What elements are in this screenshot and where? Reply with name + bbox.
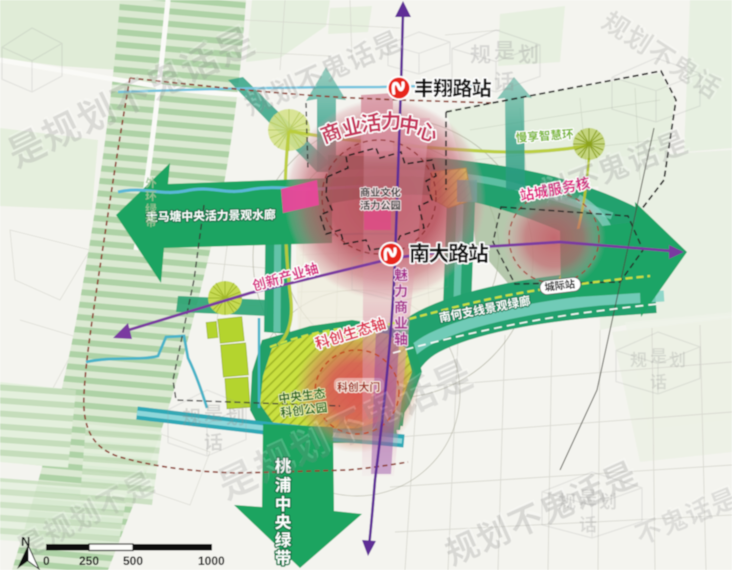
svg-text:N: N bbox=[21, 534, 30, 549]
svg-text:1000: 1000 bbox=[198, 554, 225, 568]
svg-text:0: 0 bbox=[43, 554, 50, 568]
svg-text:250: 250 bbox=[79, 554, 99, 568]
svg-text:500: 500 bbox=[123, 554, 143, 568]
